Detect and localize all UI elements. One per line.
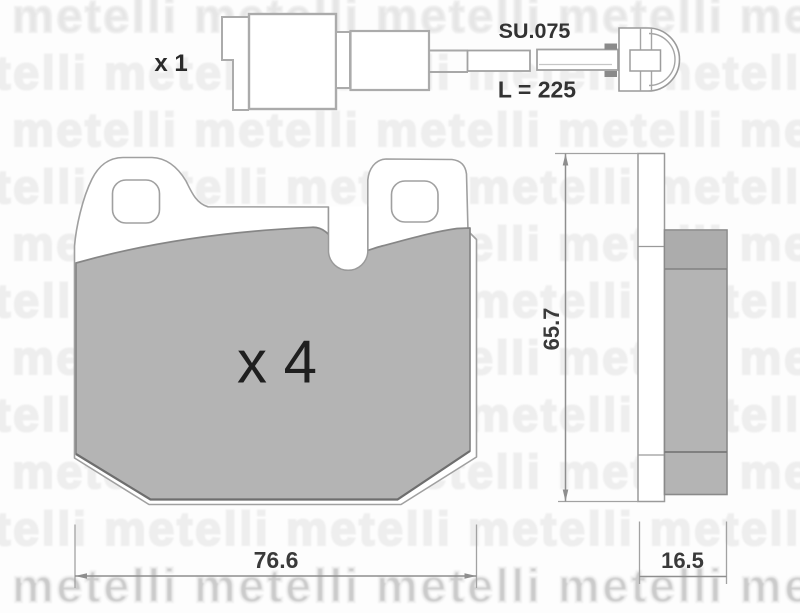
- svg-text:16.5: 16.5: [661, 548, 704, 573]
- svg-text:L = 225: L = 225: [498, 77, 576, 103]
- svg-text:x 1: x 1: [154, 50, 187, 77]
- svg-text:SU.075: SU.075: [499, 19, 571, 43]
- svg-text:65.7: 65.7: [539, 308, 564, 351]
- svg-text:76.6: 76.6: [254, 547, 299, 573]
- svg-text:x 4: x 4: [237, 329, 317, 396]
